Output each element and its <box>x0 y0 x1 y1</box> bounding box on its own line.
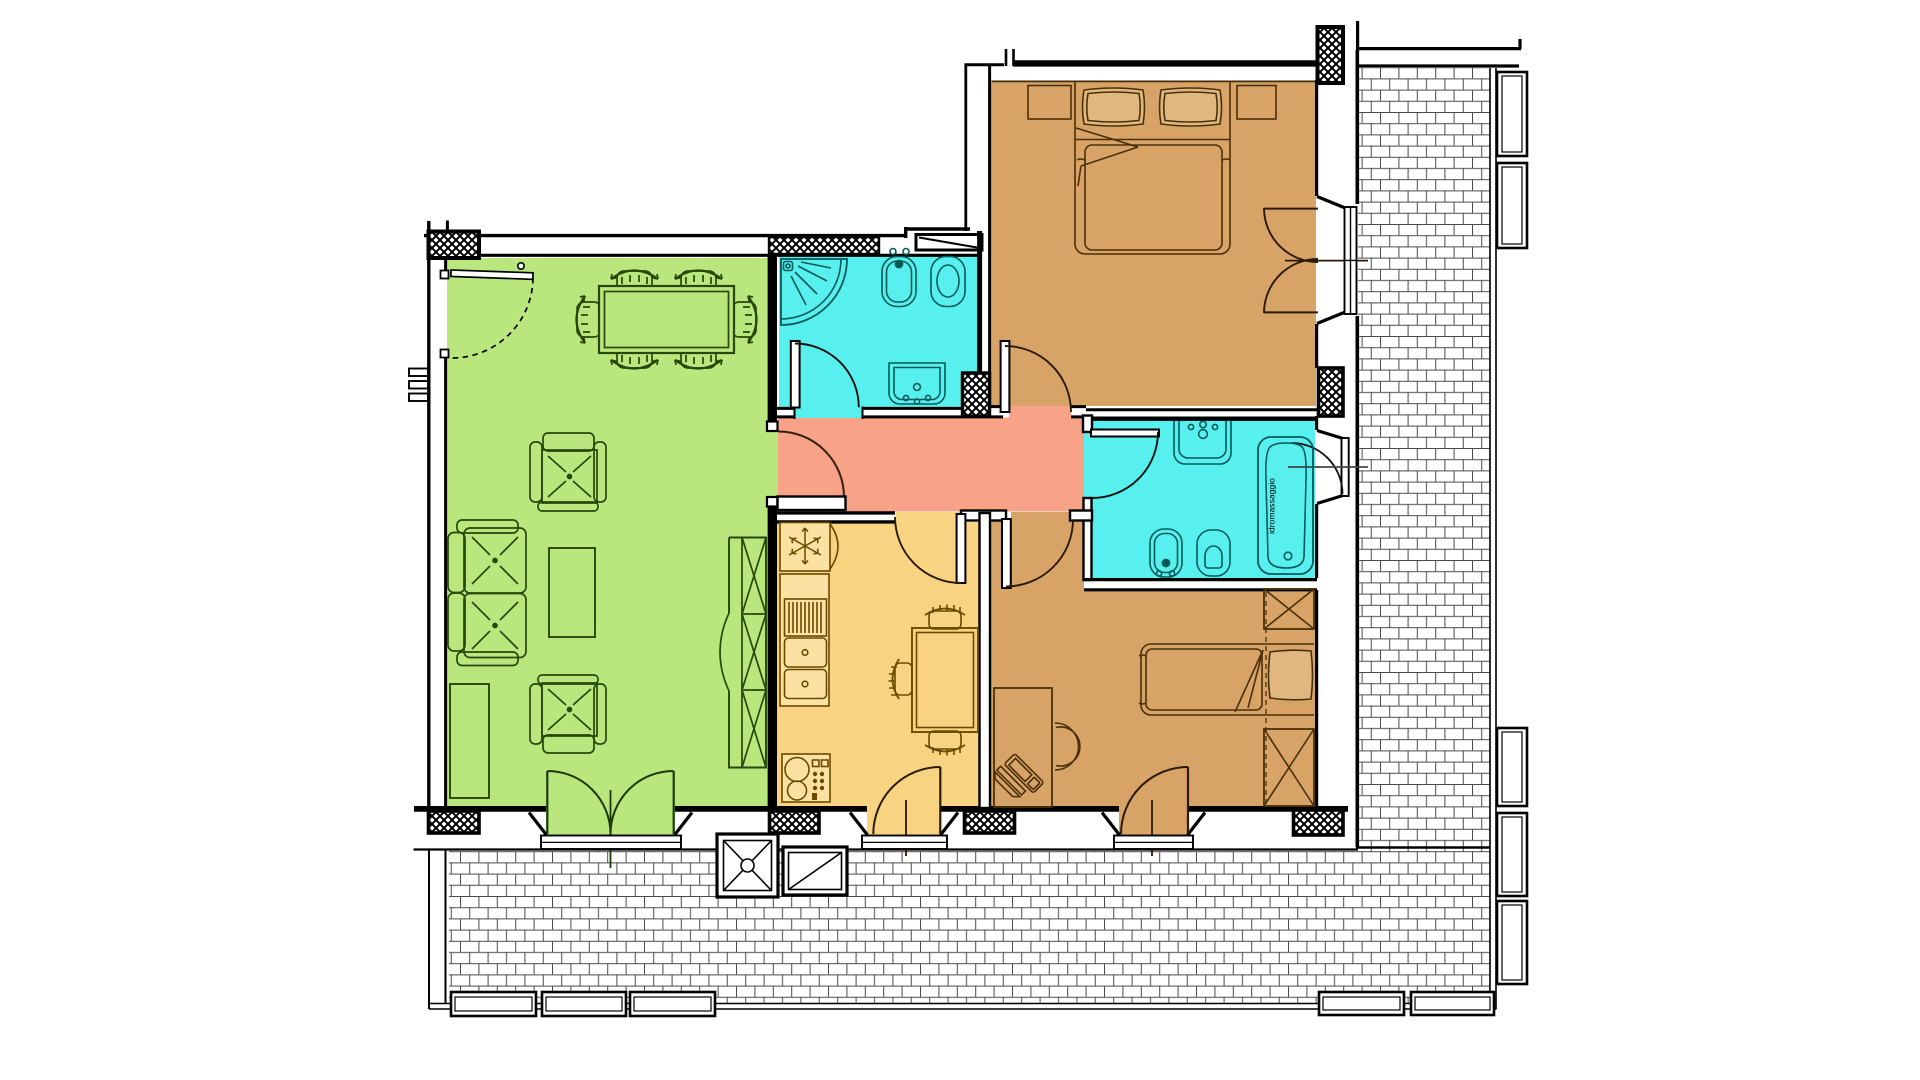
svg-text:idromassaggio: idromassaggio <box>1267 478 1277 534</box>
